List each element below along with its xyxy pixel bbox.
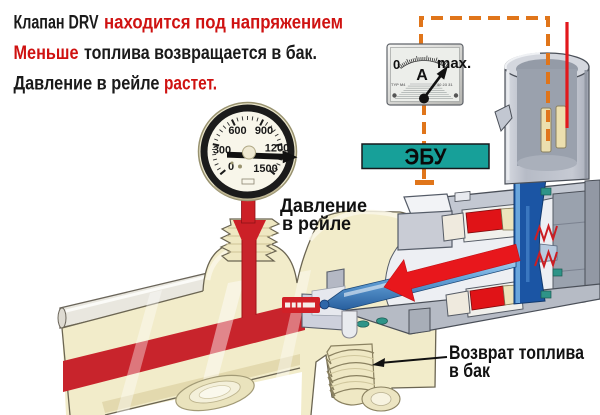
svg-text:находится под напряжением: находится под напряжением	[104, 13, 343, 34]
svg-text:0: 0	[393, 57, 400, 72]
svg-text:900: 900	[255, 125, 273, 137]
svg-text:растет.: растет.	[164, 74, 217, 95]
svg-text:600: 600	[228, 125, 246, 137]
svg-text:топлива возвращается в бак.: топлива возвращается в бак.	[84, 43, 317, 64]
svg-text:Давление в рейле: Давление в рейле	[14, 74, 160, 95]
svg-text:Клапан DRV: Клапан DRV	[14, 13, 99, 34]
svg-text:40 23 31: 40 23 31	[437, 82, 453, 87]
svg-text:TYP M4: TYP M4	[391, 82, 406, 87]
svg-text:ЭБУ: ЭБУ	[405, 144, 448, 170]
svg-text:в рейле: в рейле	[282, 214, 351, 235]
svg-text:1500: 1500	[253, 163, 277, 175]
svg-text:max.: max.	[437, 55, 471, 72]
svg-text:в бак: в бак	[449, 361, 490, 382]
svg-text:Меньше: Меньше	[14, 43, 79, 64]
svg-text:A: A	[416, 67, 428, 84]
